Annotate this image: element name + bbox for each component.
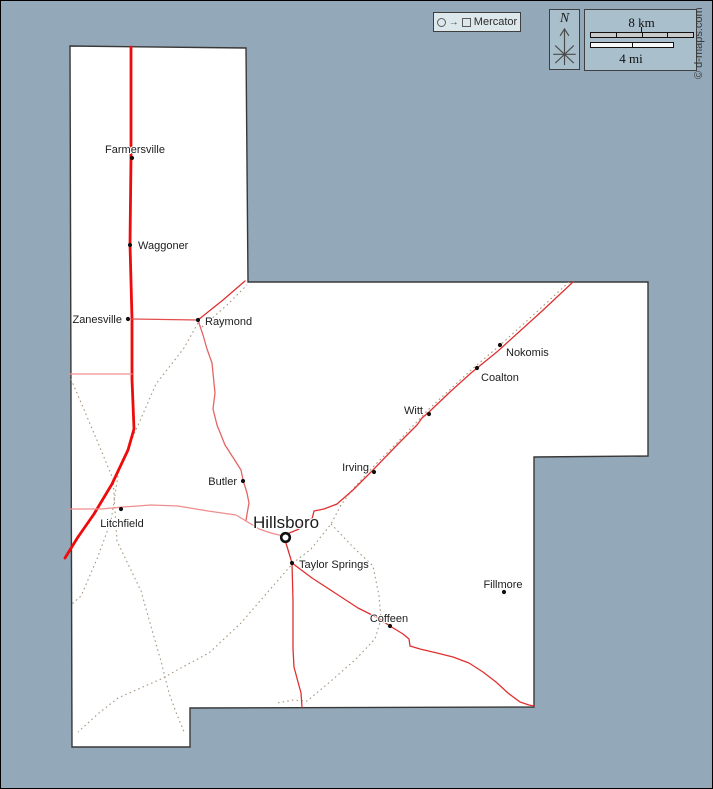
city-label-taylor-springs: Taylor Springs [299, 559, 369, 571]
city-label-hillsboro: Hillsboro [253, 513, 319, 532]
scale-mi-bar [590, 42, 674, 48]
city-marker-taylor-springs [290, 561, 294, 565]
compass-rose: N [549, 9, 580, 70]
city-label-irving: Irving [342, 462, 369, 474]
county-map: FarmersvilleWaggonerZanesvilleRaymondNok… [1, 1, 713, 789]
dmaps-credit: © d-maps.com [693, 9, 707, 79]
projection-arrow-icon: → [449, 18, 459, 27]
city-marker-zanesville [126, 317, 130, 321]
city-label-butler: Butler [208, 476, 237, 488]
city-label-fillmore: Fillmore [483, 579, 522, 591]
map-canvas: FarmersvilleWaggonerZanesvilleRaymondNok… [0, 0, 713, 789]
map-square-icon [462, 18, 471, 27]
city-marker-butler [241, 479, 245, 483]
city-label-waggoner: Waggoner [138, 240, 189, 252]
city-marker-waggoner [128, 243, 132, 247]
city-marker-irving [372, 470, 376, 474]
city-marker-hillsboro [281, 533, 290, 542]
scale-mi-label: 4 mi [585, 51, 677, 67]
compass-star-icon [549, 26, 580, 69]
globe-circle-icon [437, 18, 446, 27]
city-label-coalton: Coalton [481, 372, 519, 384]
city-marker-coalton [475, 366, 479, 370]
city-label-coffeen: Coffeen [370, 613, 408, 625]
projection-label: Mercator [474, 16, 517, 28]
scale-bar-box: 8 km 4 mi [584, 9, 697, 71]
city-label-witt: Witt [404, 405, 423, 417]
city-label-nokomis: Nokomis [506, 347, 549, 359]
city-label-raymond: Raymond [205, 316, 252, 328]
compass-north-label: N [560, 12, 569, 26]
city-marker-litchfield [119, 507, 123, 511]
scale-km-bar [590, 32, 694, 38]
city-marker-nokomis [498, 343, 502, 347]
city-label-farmersville: Farmersville [105, 144, 165, 156]
projection-legend: → Mercator [433, 12, 521, 32]
city-marker-farmersville [130, 156, 134, 160]
city-label-litchfield: Litchfield [100, 518, 143, 530]
city-marker-witt [427, 412, 431, 416]
city-marker-raymond [196, 318, 200, 322]
city-label-zanesville: Zanesville [72, 314, 122, 326]
